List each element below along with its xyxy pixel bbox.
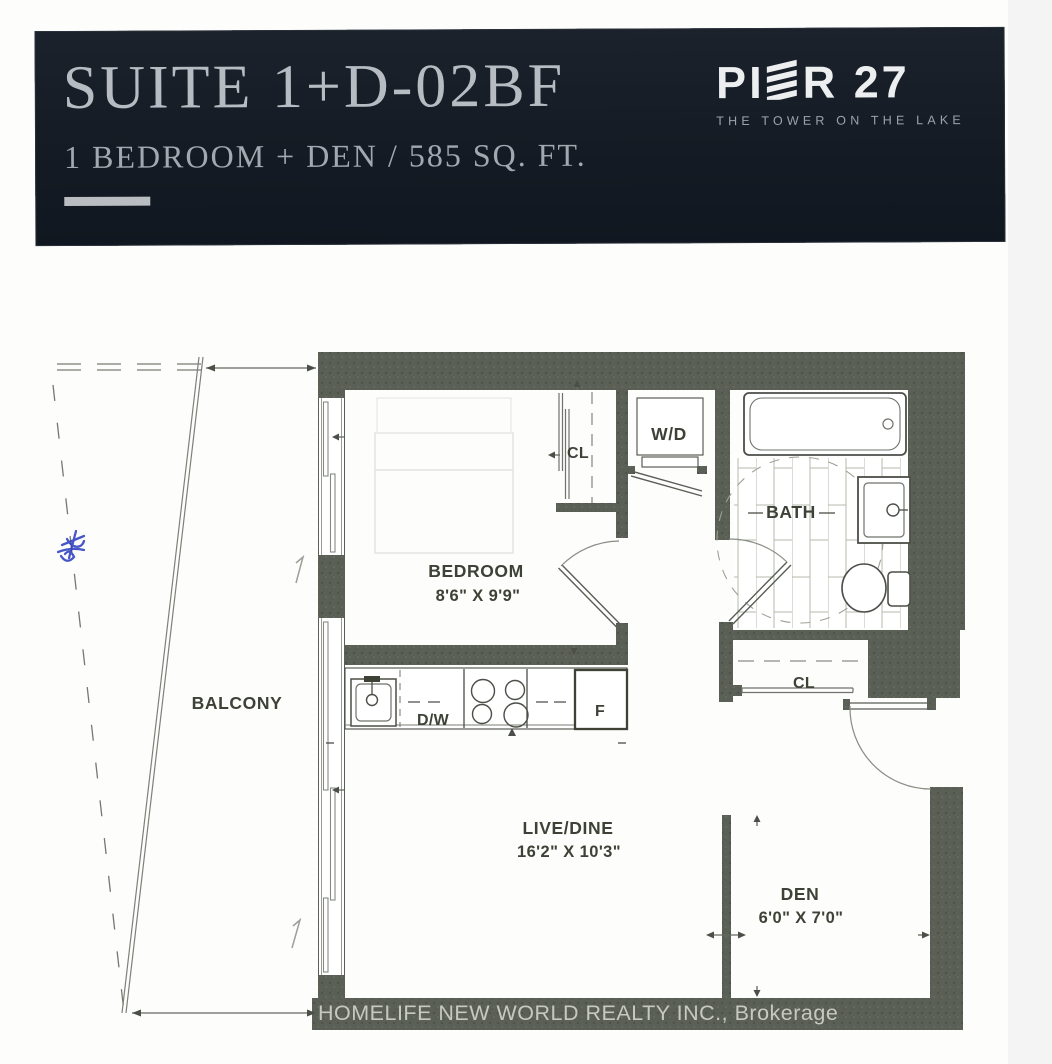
wall-right-bath (908, 390, 965, 630)
bedroom-closet-label: CL (567, 445, 589, 462)
kitchen (326, 668, 627, 743)
kitchen-sink (351, 676, 396, 726)
brokerage-watermark: HOMELIFE NEW WORLD REALTY INC., Brokerag… (318, 1001, 838, 1025)
floorplan-drawing: BEDROOM 8'6" X 9'9" BATH BALCONY LIVE/DI… (0, 0, 1052, 1064)
live-dine-label: LIVE/DINE (523, 818, 614, 838)
wall-bath-entry-block (868, 630, 960, 698)
den-label: DEN (781, 884, 820, 904)
bedroom-door (559, 541, 621, 627)
wall-hall-left-upper (616, 390, 628, 538)
entry-closet-label: CL (793, 675, 815, 692)
wd-door (631, 471, 702, 496)
wall-bedroom-closet-stub (556, 503, 618, 512)
window-slider-panel (331, 474, 336, 552)
bedroom-dims: 8'6" X 9'9" (436, 587, 521, 605)
wall-hall-left-stub (616, 623, 628, 665)
wall-entry-closet-top (733, 630, 870, 640)
wall-wd-right (715, 390, 730, 540)
blue-ink-mark (58, 531, 84, 561)
den-dim-ticks (706, 815, 930, 997)
wall-top (318, 352, 965, 390)
bathtub (744, 393, 906, 455)
entry-door-nub-right (927, 698, 936, 710)
wall-entry-stub (719, 622, 733, 702)
washer-dryer-closet (631, 398, 703, 496)
bedroom-label: BEDROOM (428, 561, 524, 581)
window-slider-panel (324, 622, 329, 790)
balcony-windows (319, 398, 344, 975)
balcony-outline (53, 357, 316, 1017)
window-slider-panel (331, 788, 336, 900)
fridge-box (575, 670, 627, 729)
bed-outline (375, 398, 513, 553)
entry-door (848, 703, 933, 789)
bath-label: BATH (766, 502, 816, 522)
wall-right-lower (930, 787, 963, 1030)
wd-door-hinge-left (625, 466, 635, 474)
fridge-label: F (595, 703, 605, 720)
balcony-label: BALCONY (192, 693, 283, 713)
wall-den-partition (722, 815, 731, 1000)
live-dine-dims: 16'2" X 10'3" (517, 843, 621, 861)
toilet (842, 564, 910, 612)
window-slider-panel (324, 898, 329, 972)
entry-closet-track-nub (733, 685, 742, 696)
washer-dryer-label: W/D (651, 424, 687, 444)
dishwasher-label: D/W (417, 712, 450, 729)
wall-bedroom-bottom (333, 645, 627, 665)
floorplan-sheet: SUITE 1+D-02BF 1 BEDROOM + DEN / 585 SQ.… (0, 0, 1052, 1064)
window-slider-panel (324, 402, 329, 476)
pencil-marks (292, 557, 303, 948)
bath-sink-vanity (858, 477, 910, 543)
den-dims: 6'0" X 7'0" (759, 909, 844, 927)
